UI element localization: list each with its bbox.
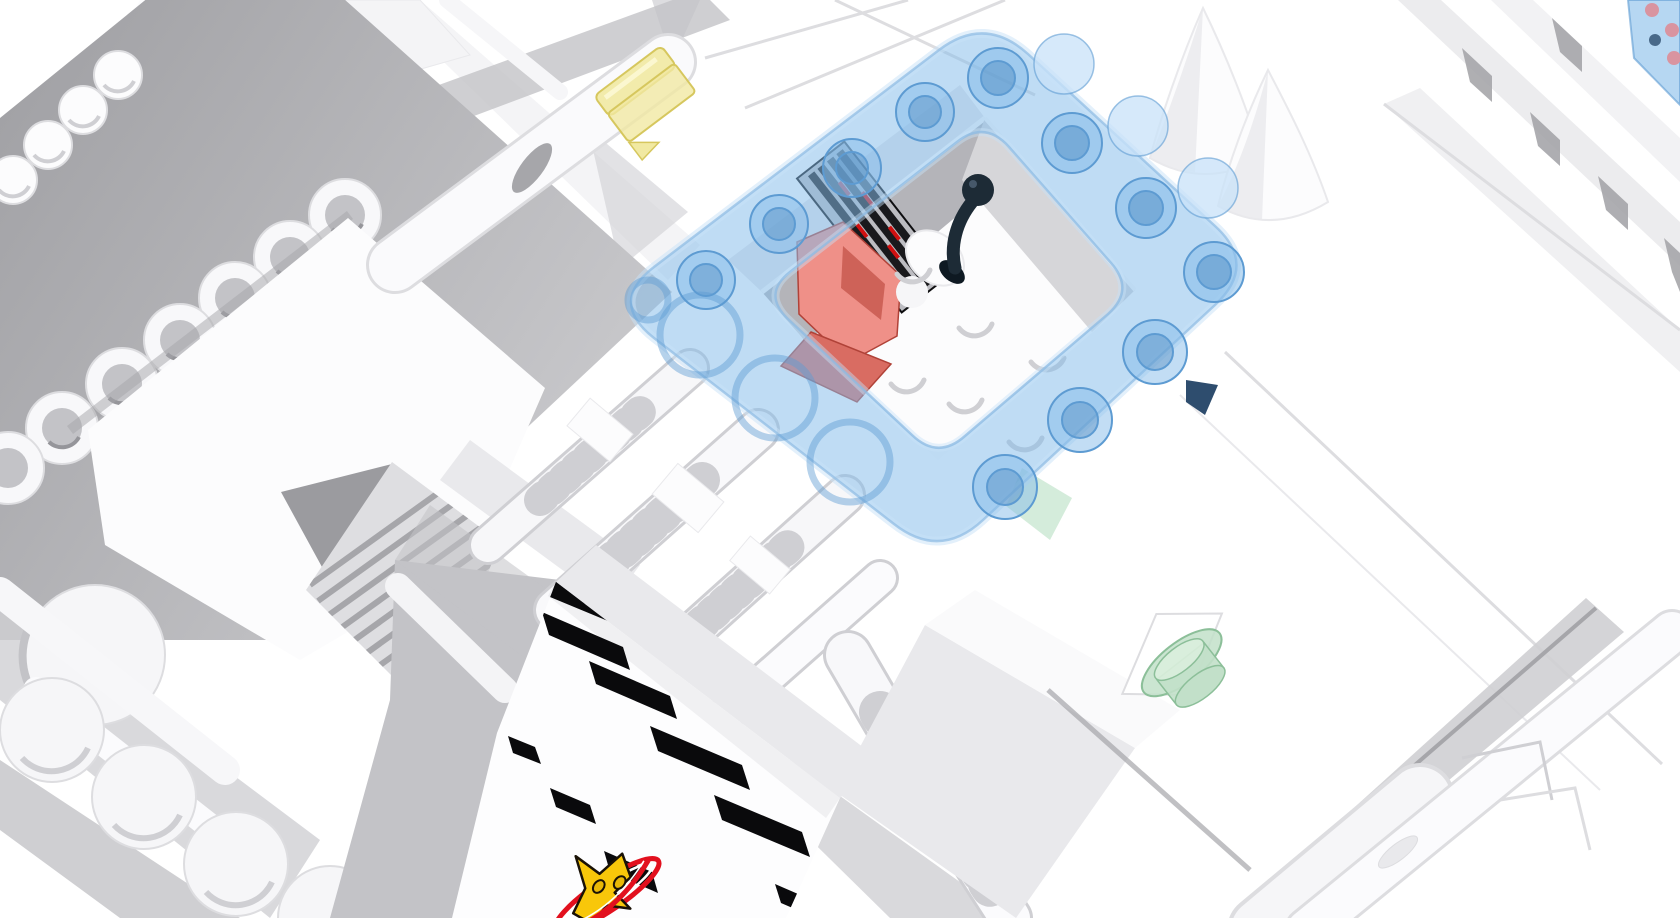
3d-viewport[interactable] xyxy=(0,0,1680,918)
